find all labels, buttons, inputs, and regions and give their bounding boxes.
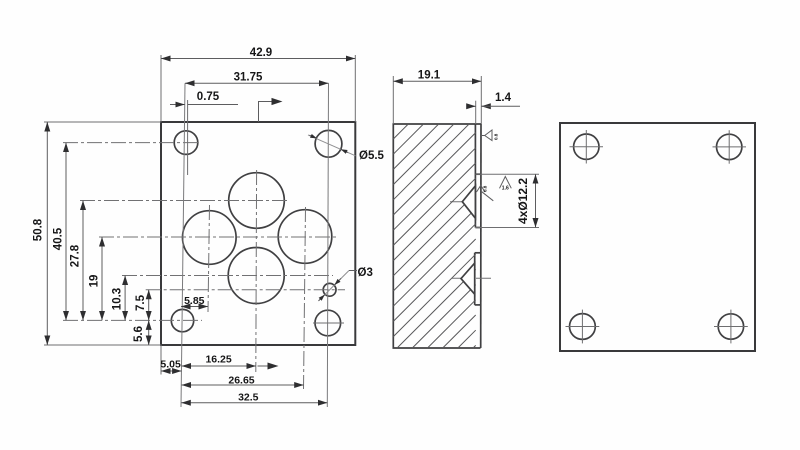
svg-text:1.6: 1.6	[502, 186, 509, 192]
svg-text:0.8: 0.8	[494, 133, 499, 140]
svg-text:19.1: 19.1	[418, 70, 441, 82]
svg-text:5.6: 5.6	[133, 326, 145, 342]
svg-text:27.8: 27.8	[70, 244, 82, 267]
svg-text:26.65: 26.65	[228, 375, 254, 387]
svg-text:31.75: 31.75	[234, 72, 263, 84]
svg-text:16.25: 16.25	[205, 354, 231, 366]
svg-text:1.4: 1.4	[495, 92, 512, 104]
svg-text:19: 19	[89, 275, 101, 288]
svg-text:0.75: 0.75	[197, 91, 220, 103]
svg-text:40.5: 40.5	[53, 227, 65, 250]
svg-text:32.5: 32.5	[238, 391, 259, 403]
svg-text:10.3: 10.3	[112, 288, 124, 310]
svg-text:Ø3: Ø3	[358, 267, 373, 279]
svg-text:Ø5.5: Ø5.5	[359, 150, 385, 162]
svg-text:5.85: 5.85	[184, 295, 205, 307]
svg-text:0.8: 0.8	[483, 185, 488, 192]
svg-text:4xØ12.2: 4xØ12.2	[516, 178, 530, 224]
svg-text:42.9: 42.9	[250, 47, 272, 59]
svg-text:7.5: 7.5	[135, 294, 147, 311]
svg-text:50.8: 50.8	[33, 218, 45, 241]
svg-text:5.05: 5.05	[160, 359, 181, 371]
